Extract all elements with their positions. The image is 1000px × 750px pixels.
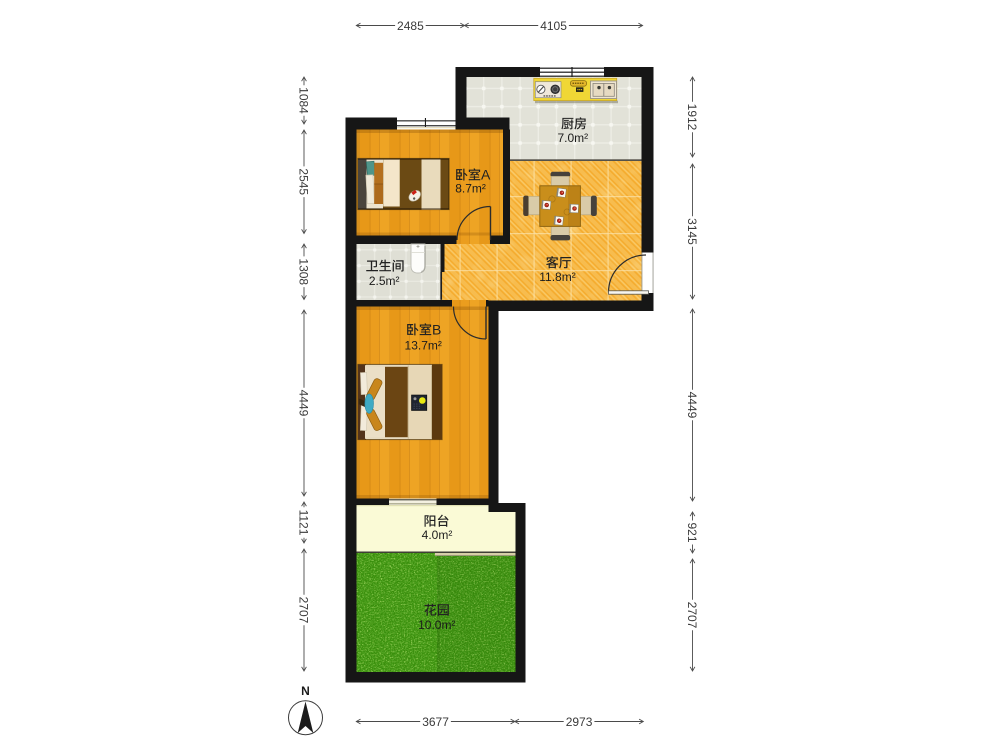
svg-text:8.7m²: 8.7m² <box>455 181 486 195</box>
svg-text:7.0m²: 7.0m² <box>557 131 588 145</box>
svg-text:B: B <box>432 321 441 337</box>
svg-text:2707: 2707 <box>685 602 699 629</box>
svg-text:1084: 1084 <box>297 87 311 114</box>
svg-text:4449: 4449 <box>297 390 311 417</box>
svg-text:1912: 1912 <box>685 104 699 131</box>
svg-text:1121: 1121 <box>297 510 311 536</box>
svg-text:10.0m²: 10.0m² <box>418 618 455 632</box>
svg-text:2545: 2545 <box>297 168 311 195</box>
svg-text:13.7m²: 13.7m² <box>405 338 442 352</box>
svg-text:2973: 2973 <box>566 715 593 729</box>
svg-text:4449: 4449 <box>685 392 699 419</box>
svg-text:1308: 1308 <box>297 258 311 285</box>
svg-text:11.8m²: 11.8m² <box>539 270 575 284</box>
svg-text:2707: 2707 <box>297 597 311 624</box>
svg-text:3677: 3677 <box>422 715 449 729</box>
svg-text:921: 921 <box>685 522 699 542</box>
svg-text:4105: 4105 <box>540 19 567 33</box>
svg-text:2485: 2485 <box>397 19 424 33</box>
svg-text:N: N <box>301 684 310 698</box>
svg-text:3145: 3145 <box>685 218 699 245</box>
svg-text:2.5m²: 2.5m² <box>369 274 400 288</box>
svg-text:4.0m²: 4.0m² <box>422 528 453 542</box>
svg-text:A: A <box>481 166 491 182</box>
